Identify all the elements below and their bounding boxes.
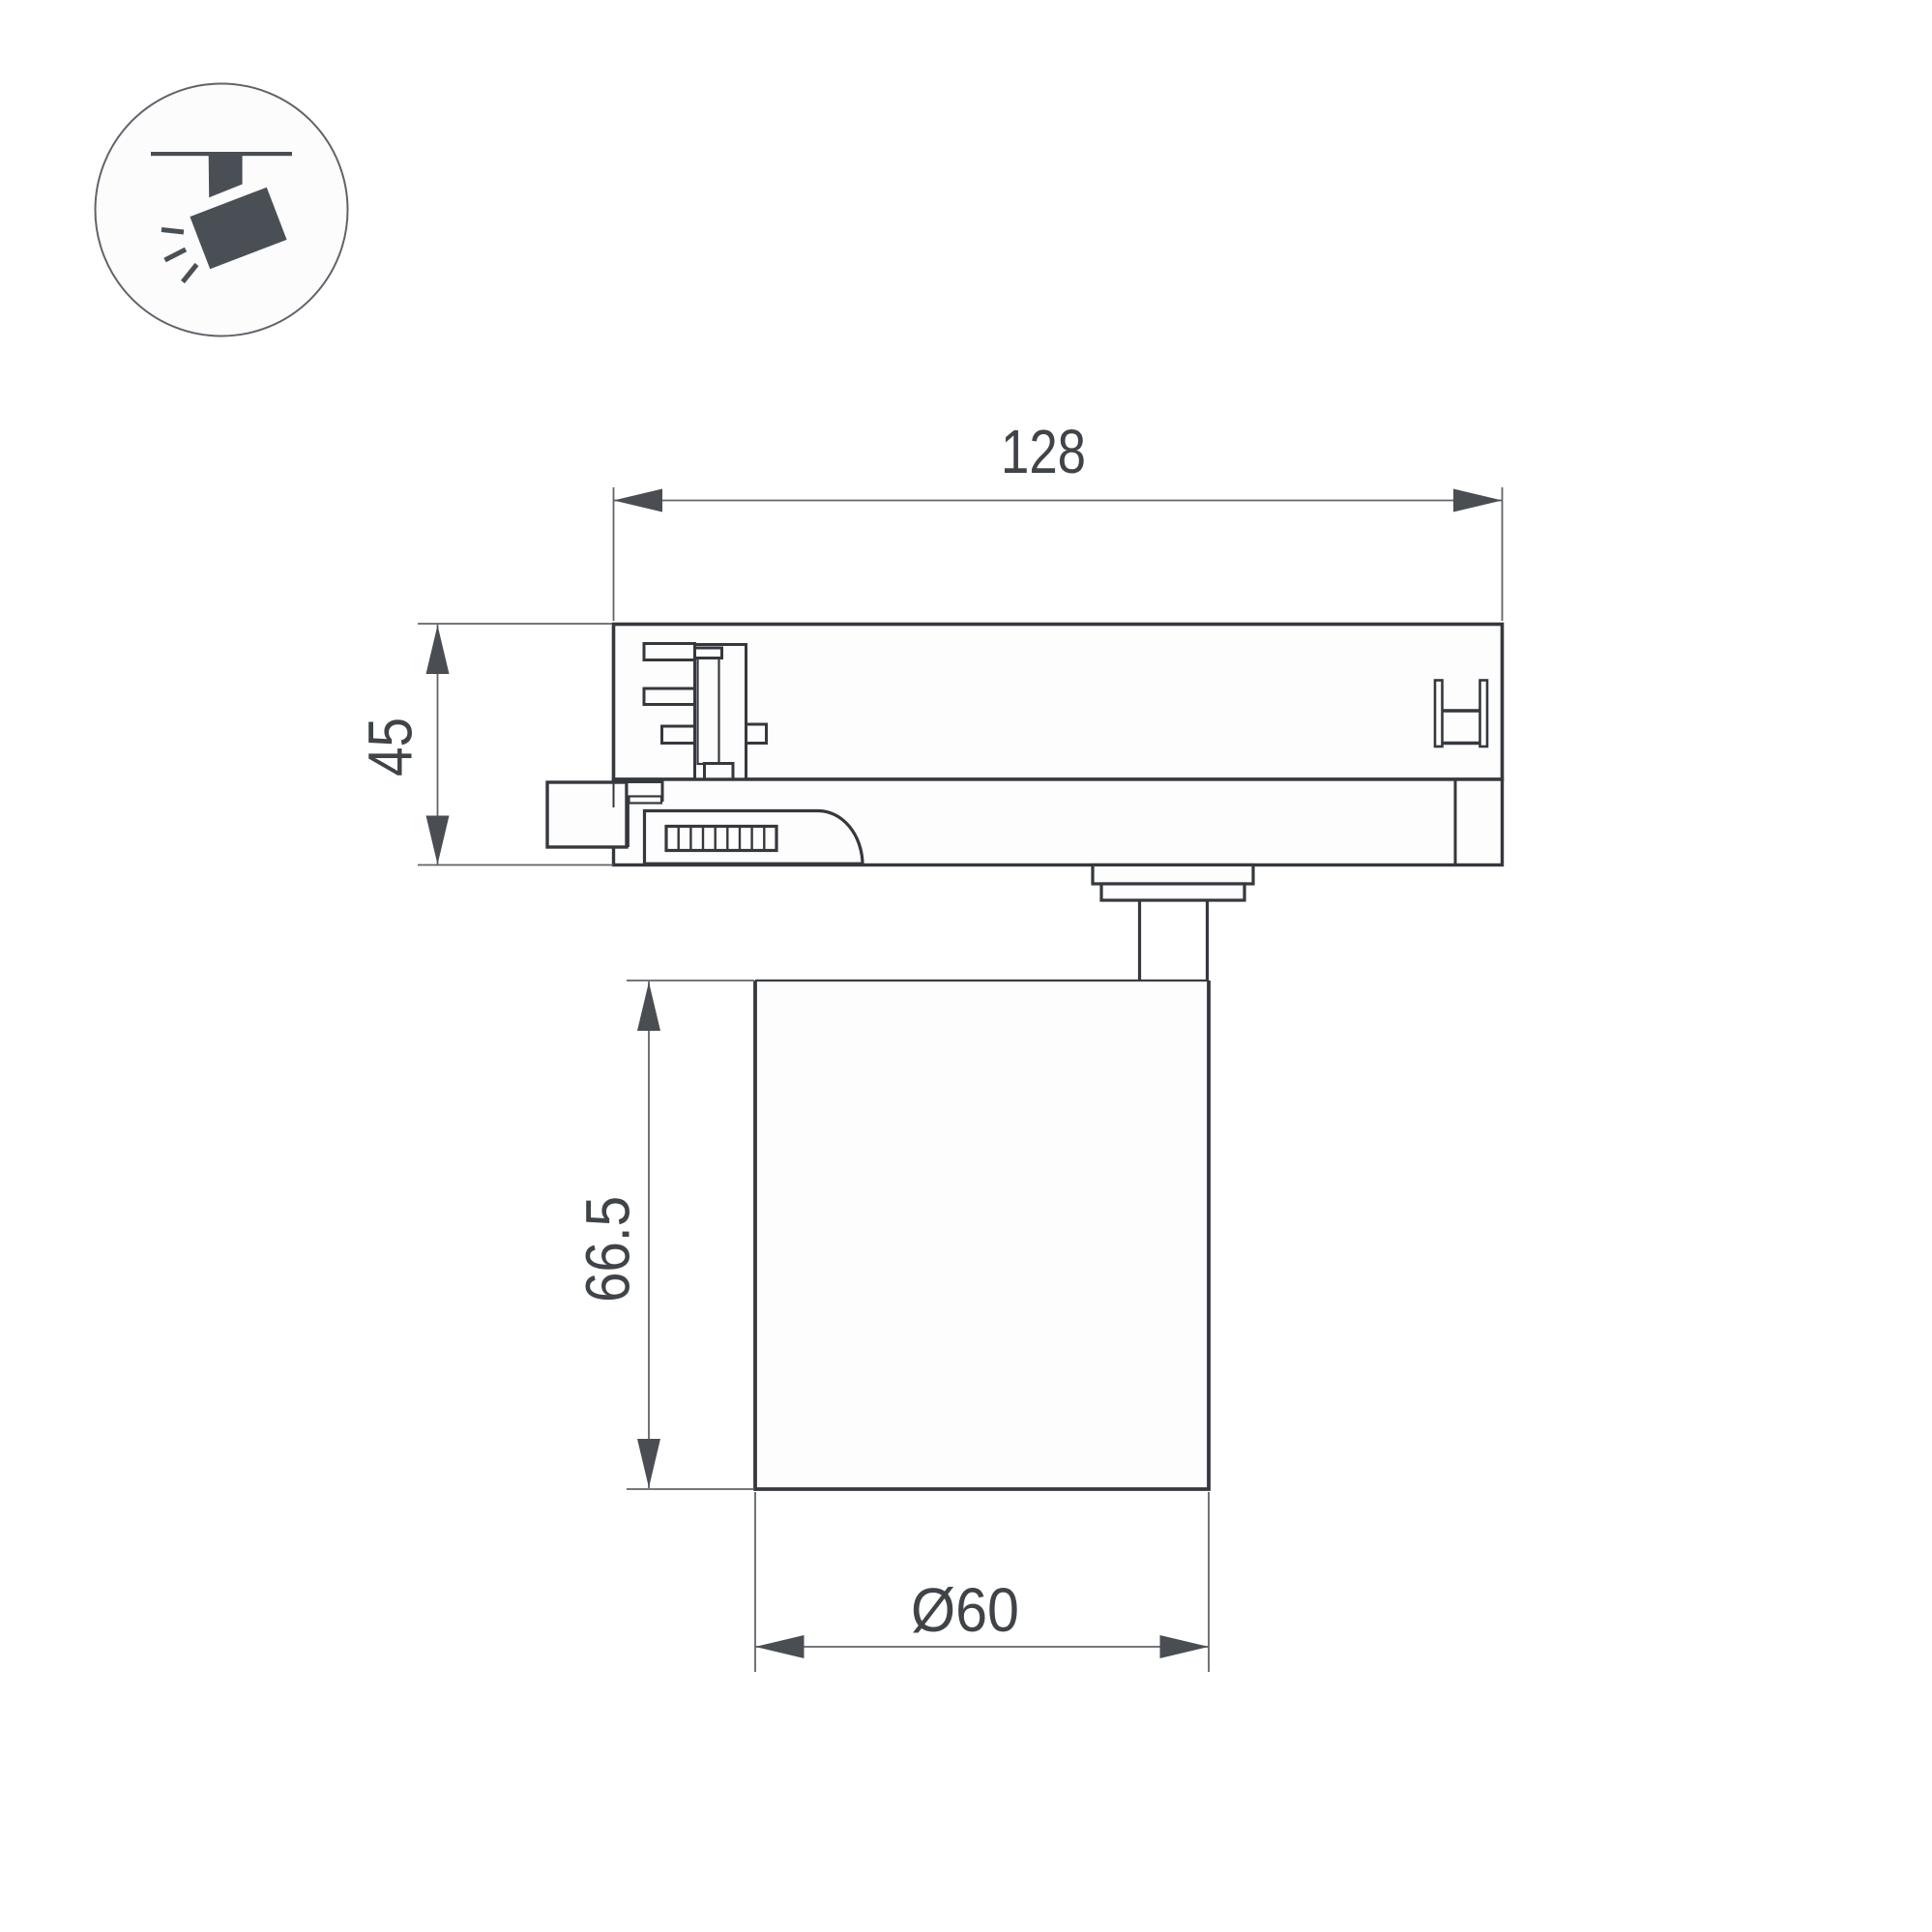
svg-text:128: 128 — [1001, 417, 1086, 486]
svg-text:45: 45 — [356, 717, 425, 776]
svg-text:Ø60: Ø60 — [911, 1575, 1019, 1645]
svg-text:66.5: 66.5 — [573, 1196, 643, 1303]
